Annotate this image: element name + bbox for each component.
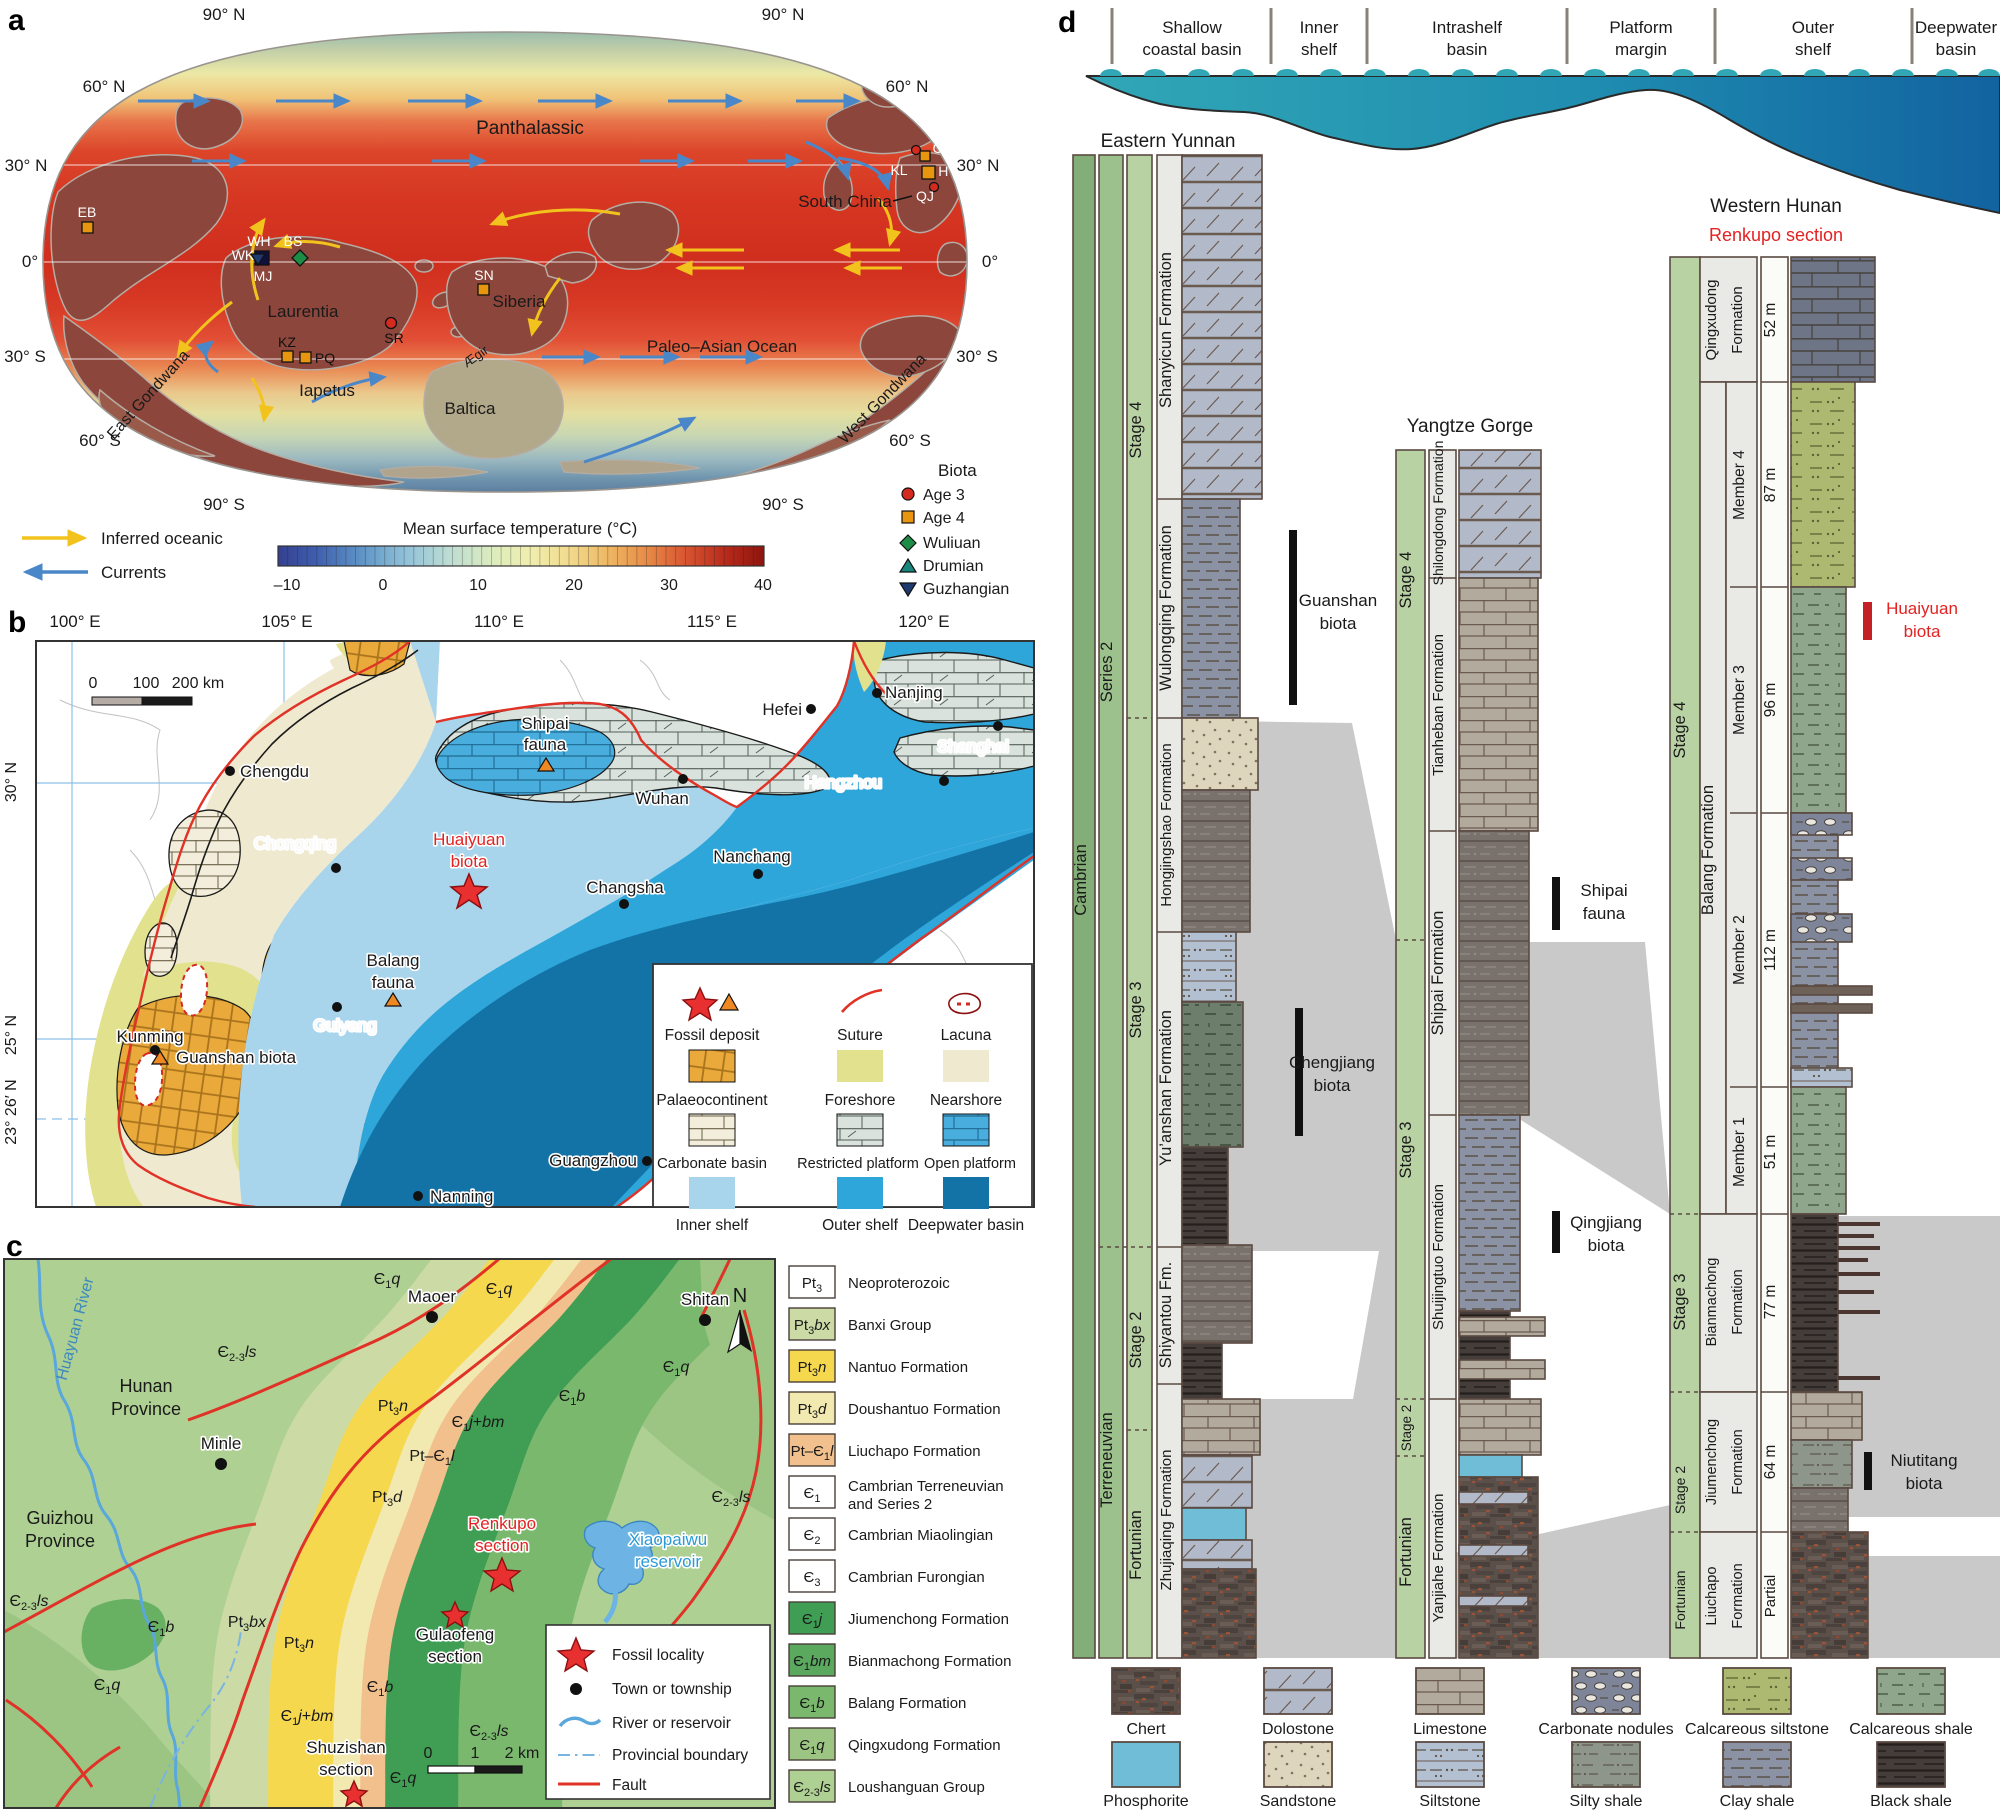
svg-text:Balang Formation: Balang Formation — [848, 1695, 966, 1712]
svg-text:BS: BS — [284, 233, 303, 249]
svg-text:fauna: fauna — [524, 735, 567, 754]
svg-text:margin: margin — [1615, 40, 1667, 59]
svg-text:MJ: MJ — [254, 268, 273, 284]
svg-text:Jiumenchong: Jiumenchong — [1704, 1419, 1720, 1505]
svg-text:0: 0 — [379, 577, 388, 594]
svg-text:Stage 3: Stage 3 — [1397, 1122, 1415, 1179]
svg-text:Stage 3: Stage 3 — [1671, 1274, 1689, 1331]
svg-text:reservoir: reservoir — [635, 1552, 701, 1571]
svg-text:Shipai: Shipai — [1580, 881, 1627, 900]
svg-text:Stage 2: Stage 2 — [1672, 1466, 1688, 1514]
svg-text:23° 26′ N: 23° 26′ N — [3, 1079, 20, 1144]
svg-text:biota: biota — [451, 852, 488, 871]
svg-text:Intrashelf: Intrashelf — [1432, 18, 1502, 37]
svg-text:60° S: 60° S — [889, 431, 931, 450]
svg-text:Outer: Outer — [1792, 18, 1835, 37]
svg-text:Member 1: Member 1 — [1731, 1117, 1748, 1187]
svg-text:Huaiyuan: Huaiyuan — [433, 830, 505, 849]
svg-text:Series 2: Series 2 — [1098, 642, 1116, 703]
svg-text:WK: WK — [232, 247, 255, 263]
svg-text:Stage 3: Stage 3 — [1127, 982, 1145, 1039]
svg-text:PQ: PQ — [315, 350, 335, 366]
svg-text:51 m: 51 m — [1762, 1135, 1779, 1169]
svg-text:2 km: 2 km — [505, 1745, 540, 1762]
svg-text:Nanchang: Nanchang — [713, 847, 791, 866]
svg-text:Laurentia: Laurentia — [268, 302, 339, 321]
svg-text:fauna: fauna — [1583, 904, 1626, 923]
svg-text:115° E: 115° E — [687, 612, 737, 631]
svg-text:Currents: Currents — [101, 563, 166, 582]
svg-text:Palaeocontinent: Palaeocontinent — [656, 1092, 768, 1109]
svg-text:Fossil locality: Fossil locality — [612, 1647, 704, 1664]
svg-text:biota: biota — [1906, 1474, 1943, 1493]
svg-text:52 m: 52 m — [1762, 303, 1779, 337]
svg-text:Dolostone: Dolostone — [1262, 1721, 1334, 1738]
svg-text:Inner shelf: Inner shelf — [676, 1217, 749, 1234]
svg-text:Maoer: Maoer — [408, 1287, 457, 1306]
svg-text:Deepwater: Deepwater — [1915, 18, 1998, 37]
svg-text:30: 30 — [660, 577, 678, 594]
svg-text:Silty shale: Silty shale — [1570, 1793, 1643, 1810]
svg-text:biota: biota — [1904, 622, 1941, 641]
svg-text:QJ: QJ — [916, 188, 934, 204]
svg-text:South China: South China — [798, 192, 892, 211]
svg-text:Guiyang: Guiyang — [313, 1016, 376, 1035]
svg-text:Wuliuan: Wuliuan — [923, 535, 981, 552]
svg-text:1: 1 — [471, 1745, 480, 1762]
svg-text:Hangzhou: Hangzhou — [804, 773, 882, 792]
svg-text:Lacuna: Lacuna — [941, 1027, 992, 1044]
svg-text:Tianheban Formation: Tianheban Formation — [1430, 634, 1447, 776]
svg-text:Clay shale: Clay shale — [1720, 1793, 1795, 1810]
svg-text:KZ: KZ — [278, 334, 296, 350]
svg-text:Wulongqing Formation: Wulongqing Formation — [1157, 525, 1175, 691]
svg-text:section: section — [475, 1536, 529, 1555]
svg-text:Banxi Group: Banxi Group — [848, 1317, 931, 1334]
svg-text:Provincial boundary: Provincial boundary — [612, 1747, 748, 1764]
svg-text:SN: SN — [474, 267, 493, 283]
svg-text:Cambrian Terreneuvian: Cambrian Terreneuvian — [848, 1478, 1004, 1495]
svg-text:30° S: 30° S — [4, 347, 46, 366]
svg-text:Shiyantou Fm.: Shiyantou Fm. — [1157, 1262, 1175, 1368]
svg-text:Siberia: Siberia — [493, 292, 546, 311]
svg-text:Guanshan: Guanshan — [1299, 591, 1377, 610]
svg-text:Partial: Partial — [1762, 1575, 1779, 1618]
svg-text:Chongqing: Chongqing — [254, 834, 336, 853]
svg-text:Stage 4: Stage 4 — [1671, 702, 1689, 759]
svg-text:Fault: Fault — [612, 1777, 647, 1794]
svg-text:Member 3: Member 3 — [1731, 665, 1748, 735]
svg-text:200 km: 200 km — [172, 675, 224, 692]
svg-text:a: a — [8, 4, 25, 37]
svg-text:Neoproterozoic: Neoproterozoic — [848, 1275, 950, 1292]
svg-text:Terreneuvian: Terreneuvian — [1098, 1412, 1116, 1507]
svg-text:Fortunian: Fortunian — [1397, 1517, 1415, 1587]
svg-text:Stage 4: Stage 4 — [1127, 402, 1145, 459]
svg-text:0: 0 — [89, 675, 98, 692]
svg-text:60° N: 60° N — [886, 77, 929, 96]
svg-text:100: 100 — [133, 675, 160, 692]
svg-text:Guangzhou: Guangzhou — [549, 1151, 637, 1170]
svg-text:Yangtze Gorge: Yangtze Gorge — [1407, 416, 1533, 437]
svg-text:Nantuo Formation: Nantuo Formation — [848, 1359, 968, 1376]
svg-text:Deepwater basin: Deepwater basin — [908, 1217, 1024, 1234]
svg-text:Hunan: Hunan — [119, 1376, 172, 1396]
svg-text:Shallow: Shallow — [1162, 18, 1222, 37]
svg-text:Suture: Suture — [837, 1027, 883, 1044]
svg-text:20: 20 — [565, 577, 583, 594]
svg-text:Stage 4: Stage 4 — [1397, 552, 1415, 609]
svg-text:Guanshan biota: Guanshan biota — [176, 1048, 297, 1067]
svg-text:112 m: 112 m — [1762, 929, 1779, 971]
svg-text:Shuzishan: Shuzishan — [306, 1738, 385, 1757]
svg-text:Balang: Balang — [367, 951, 420, 970]
svg-text:Limestone: Limestone — [1413, 1721, 1487, 1738]
svg-text:Liuchapo Formation: Liuchapo Formation — [848, 1443, 981, 1460]
svg-text:Changsha: Changsha — [586, 878, 664, 897]
svg-text:Mean surface temperature (°C): Mean surface temperature (°C) — [403, 519, 638, 538]
svg-text:Bianmachong: Bianmachong — [1704, 1258, 1720, 1347]
svg-text:Open platform: Open platform — [924, 1156, 1016, 1172]
svg-text:Qingjiang: Qingjiang — [1570, 1213, 1642, 1232]
svg-text:Member 2: Member 2 — [1731, 915, 1748, 985]
svg-text:30° N: 30° N — [957, 156, 1000, 175]
svg-text:Stage 2: Stage 2 — [1399, 1405, 1414, 1452]
svg-text:coastal basin: coastal basin — [1142, 40, 1241, 59]
svg-text:Carbonate basin: Carbonate basin — [657, 1155, 767, 1172]
svg-text:110° E: 110° E — [474, 612, 524, 631]
svg-text:Qingxudong: Qingxudong — [1703, 280, 1720, 361]
svg-text:fauna: fauna — [372, 973, 415, 992]
svg-text:biota: biota — [1588, 1236, 1625, 1255]
svg-text:0°: 0° — [22, 252, 38, 271]
svg-text:Age 4: Age 4 — [923, 510, 965, 527]
svg-text:biota: biota — [1314, 1076, 1351, 1095]
svg-text:120° E: 120° E — [898, 612, 949, 631]
svg-text:Formation: Formation — [1730, 1563, 1746, 1628]
svg-text:Shilongdong Formation: Shilongdong Formation — [1430, 441, 1446, 586]
svg-text:Stage 2: Stage 2 — [1127, 1312, 1145, 1369]
svg-text:Kunming: Kunming — [116, 1027, 183, 1046]
svg-text:40: 40 — [754, 577, 772, 594]
svg-text:Platform: Platform — [1609, 18, 1672, 37]
svg-text:Formation: Formation — [1730, 1429, 1746, 1494]
svg-text:biota: biota — [1320, 614, 1357, 633]
svg-text:Gulaofeng: Gulaofeng — [416, 1625, 494, 1644]
svg-text:basin: basin — [1447, 40, 1488, 59]
svg-text:Zhujiaqing Formation: Zhujiaqing Formation — [1158, 1450, 1175, 1591]
svg-text:Loushanguan Group: Loushanguan Group — [848, 1779, 985, 1796]
svg-text:Bianmachong Formation: Bianmachong Formation — [848, 1653, 1011, 1670]
svg-text:Formation: Formation — [1729, 286, 1746, 354]
svg-text:KL: KL — [890, 162, 907, 178]
svg-text:Chengdu: Chengdu — [240, 762, 309, 781]
svg-text:Paleo–Asian Ocean: Paleo–Asian Ocean — [647, 337, 797, 356]
svg-text:Shanyicun Formation: Shanyicun Formation — [1157, 252, 1175, 408]
svg-text:Shitan: Shitan — [681, 1290, 729, 1309]
svg-text:105° E: 105° E — [261, 612, 312, 631]
svg-text:Yanjiahe Formation: Yanjiahe Formation — [1430, 1494, 1447, 1623]
svg-text:Xiaopaiwu: Xiaopaiwu — [629, 1530, 707, 1549]
svg-text:Qingxudong Formation: Qingxudong Formation — [848, 1737, 1001, 1754]
svg-text:HY: HY — [938, 163, 958, 179]
svg-text:Cambrian: Cambrian — [1072, 844, 1090, 916]
svg-text:Inner: Inner — [1300, 18, 1339, 37]
svg-text:87 m: 87 m — [1762, 468, 1779, 502]
svg-text:Nearshore: Nearshore — [930, 1092, 1002, 1109]
svg-text:Shipai Formation: Shipai Formation — [1429, 911, 1447, 1036]
svg-text:Fortunian: Fortunian — [1672, 1570, 1688, 1629]
svg-text:Renkupo: Renkupo — [468, 1514, 536, 1533]
svg-text:10: 10 — [469, 577, 487, 594]
svg-text:0°: 0° — [982, 252, 998, 271]
svg-text:Minle: Minle — [201, 1434, 242, 1453]
svg-text:Sandstone: Sandstone — [1260, 1793, 1337, 1810]
svg-text:25° N: 25° N — [3, 1015, 20, 1055]
svg-text:basin: basin — [1936, 40, 1977, 59]
svg-text:Town or township: Town or township — [612, 1681, 732, 1698]
svg-text:Panthalassic: Panthalassic — [476, 118, 584, 139]
svg-text:30° S: 30° S — [956, 347, 998, 366]
svg-text:Foreshore: Foreshore — [825, 1092, 896, 1109]
svg-text:96 m: 96 m — [1762, 683, 1779, 717]
svg-text:Cambrian Furongian: Cambrian Furongian — [848, 1569, 985, 1586]
svg-text:Black shale: Black shale — [1870, 1793, 1952, 1810]
svg-text:30° N: 30° N — [5, 156, 48, 175]
svg-text:Phosphorite: Phosphorite — [1103, 1793, 1188, 1810]
svg-text:Western Hunan: Western Hunan — [1710, 196, 1842, 217]
svg-text:Biota: Biota — [938, 461, 977, 480]
svg-text:N: N — [733, 1285, 747, 1307]
svg-text:Formation: Formation — [1730, 1269, 1746, 1334]
svg-text:Guzhangian: Guzhangian — [923, 581, 1009, 598]
svg-text:Niutitang: Niutitang — [1890, 1451, 1957, 1470]
svg-text:b: b — [8, 606, 26, 639]
svg-text:Outer shelf: Outer shelf — [822, 1217, 899, 1234]
svg-text:EB: EB — [78, 204, 97, 220]
svg-text:0: 0 — [424, 1745, 433, 1762]
svg-text:Jiumenchong Formation: Jiumenchong Formation — [848, 1611, 1009, 1628]
svg-text:30° N: 30° N — [3, 762, 20, 802]
svg-text:90° N: 90° N — [203, 5, 246, 24]
svg-text:Nanjing: Nanjing — [885, 683, 943, 702]
svg-text:shelf: shelf — [1795, 40, 1831, 59]
svg-text:Carbonate nodules: Carbonate nodules — [1538, 1721, 1673, 1738]
svg-text:Wuhan: Wuhan — [635, 789, 689, 808]
svg-text:Chert: Chert — [1126, 1721, 1166, 1738]
svg-text:Fortunian: Fortunian — [1127, 1510, 1145, 1580]
svg-text:d: d — [1058, 6, 1076, 39]
svg-text:Guizhou: Guizhou — [26, 1508, 93, 1528]
svg-text:Yu’anshan Formation: Yu’anshan Formation — [1157, 1010, 1175, 1166]
svg-text:Fossil deposit: Fossil deposit — [665, 1027, 760, 1044]
svg-text:64 m: 64 m — [1762, 1445, 1779, 1479]
svg-text:Restricted platform: Restricted platform — [797, 1156, 919, 1172]
svg-text:SR: SR — [384, 330, 403, 346]
svg-text:Province: Province — [25, 1531, 95, 1551]
svg-text:River or reservoir: River or reservoir — [612, 1715, 731, 1732]
svg-text:77 m: 77 m — [1762, 1285, 1779, 1319]
svg-text:60° N: 60° N — [83, 77, 126, 96]
svg-text:Siltstone: Siltstone — [1419, 1793, 1480, 1810]
svg-text:Huaiyuan: Huaiyuan — [1886, 599, 1958, 618]
svg-text:Renkupo section: Renkupo section — [1709, 225, 1843, 245]
svg-text:100° E: 100° E — [49, 612, 100, 631]
svg-text:Calcareous siltstone: Calcareous siltstone — [1685, 1721, 1829, 1738]
svg-text:Hongjingshao Formation: Hongjingshao Formation — [1158, 743, 1175, 906]
svg-text:section: section — [319, 1760, 373, 1779]
svg-text:90° S: 90° S — [203, 495, 245, 514]
svg-text:Liuchapo: Liuchapo — [1704, 1567, 1720, 1626]
svg-text:Member 4: Member 4 — [1731, 450, 1748, 520]
svg-text:90° S: 90° S — [762, 495, 804, 514]
svg-text:–10: –10 — [274, 577, 301, 594]
svg-text:Shuijingtuo Formation: Shuijingtuo Formation — [1430, 1184, 1447, 1330]
svg-text:shelf: shelf — [1301, 40, 1337, 59]
svg-text:CJ: CJ — [932, 140, 949, 156]
svg-text:Age 3: Age 3 — [923, 487, 965, 504]
svg-text:Calcareous shale: Calcareous shale — [1849, 1721, 1973, 1738]
svg-text:Province: Province — [111, 1399, 181, 1419]
svg-text:Baltica: Baltica — [444, 399, 496, 418]
svg-text:Hefei: Hefei — [762, 700, 802, 719]
svg-text:and Series 2: and Series 2 — [848, 1496, 932, 1513]
svg-text:Cambrian Miaolingian: Cambrian Miaolingian — [848, 1527, 993, 1544]
svg-text:90° N: 90° N — [762, 5, 805, 24]
svg-text:Doushantuo Formation: Doushantuo Formation — [848, 1401, 1001, 1418]
svg-text:Shanghai: Shanghai — [937, 737, 1009, 756]
svg-text:Inferred oceanic: Inferred oceanic — [101, 529, 223, 548]
svg-text:Chengjiang: Chengjiang — [1289, 1053, 1375, 1072]
svg-text:section: section — [428, 1647, 482, 1666]
svg-text:Shipai: Shipai — [521, 714, 568, 733]
svg-text:Eastern Yunnan: Eastern Yunnan — [1101, 131, 1236, 152]
svg-text:Balang Formation: Balang Formation — [1699, 785, 1717, 915]
svg-text:Drumian: Drumian — [923, 558, 983, 575]
svg-text:Iapetus: Iapetus — [299, 381, 355, 400]
svg-text:Nanning: Nanning — [430, 1187, 493, 1206]
